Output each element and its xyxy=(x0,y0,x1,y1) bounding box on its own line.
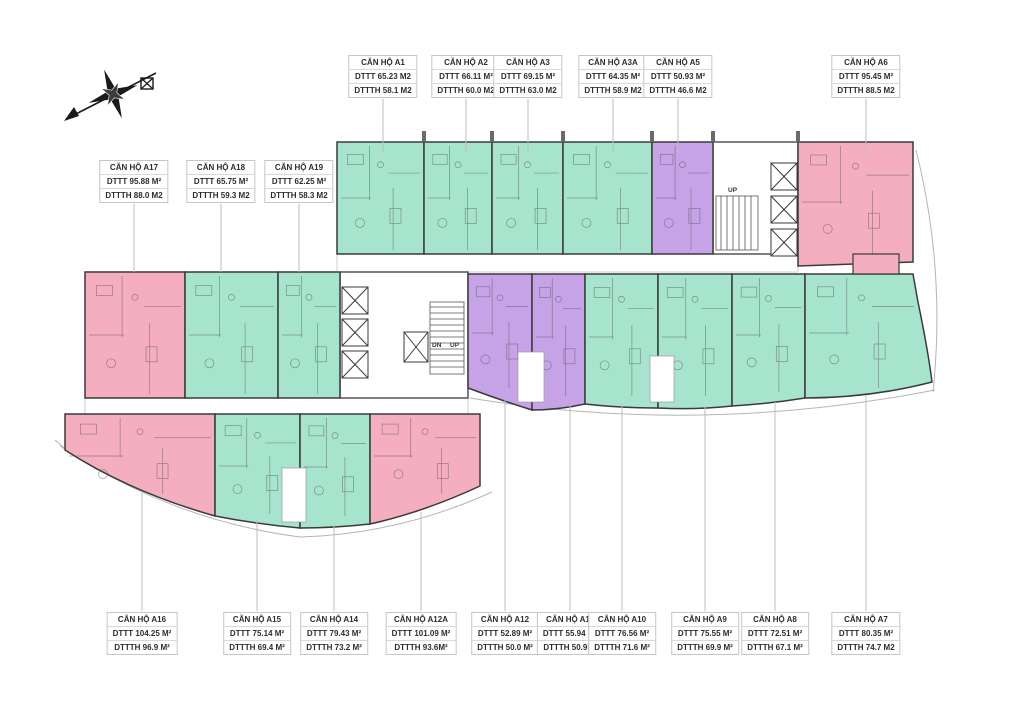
unit-label-dttt: DTTT 64.35 M² xyxy=(579,69,646,83)
wall-ticks xyxy=(422,131,800,142)
unit-label-A7[interactable]: CĂN HỘ A7DTTT 80.35 M²DTTTH 74.7 M2 xyxy=(831,612,900,655)
unit-label-dttt: DTTT 62.25 M² xyxy=(265,174,332,188)
unit-label-title: CĂN HỘ A8 xyxy=(742,613,808,626)
unit-label-title: CĂN HỘ A6 xyxy=(832,56,899,69)
unit-label-A9[interactable]: CĂN HỘ A9DTTT 75.55 M²DTTTH 69.9 M² xyxy=(671,612,739,655)
unit-label-title: CĂN HỘ A17 xyxy=(100,161,167,174)
unit-label-dttt: DTTT 75.14 M² xyxy=(224,626,290,640)
stair-label-dn: DN xyxy=(432,342,442,349)
unit-label-A10[interactable]: CĂN HỘ A10DTTT 76.56 M²DTTTH 71.6 M² xyxy=(588,612,656,655)
unit-label-title: CĂN HỘ A5 xyxy=(644,56,711,69)
unit-label-title: CĂN HỘ A1 xyxy=(349,56,416,69)
elevator-icon xyxy=(342,287,368,314)
elevator-icon xyxy=(404,332,428,362)
unit-label-dttth: DTTTH 69.9 M² xyxy=(672,640,738,654)
unit-label-title: CĂN HỘ A14 xyxy=(301,613,367,626)
unit-label-A6[interactable]: CĂN HỘ A6DTTT 95.45 M²DTTTH 88.5 M2 xyxy=(831,55,900,98)
unit-label-title: CĂN HỘ A12 xyxy=(472,613,538,626)
unit-label-dttth: DTTTH 63.0 M2 xyxy=(494,83,561,97)
unit-label-A8[interactable]: CĂN HỘ A8DTTT 72.51 M²DTTTH 67.1 M² xyxy=(741,612,809,655)
unit-label-dttt: DTTT 50.93 M² xyxy=(644,69,711,83)
elevator-icon xyxy=(771,229,797,256)
unit-label-A18[interactable]: CĂN HỘ A18DTTT 65.75 M²DTTTH 59.3 M2 xyxy=(186,160,255,203)
unit-label-dttth: DTTTH 88.0 M2 xyxy=(100,188,167,202)
unit-label-title: CĂN HỘ A19 xyxy=(265,161,332,174)
unit-label-A15[interactable]: CĂN HỘ A15DTTT 75.14 M²DTTTH 69.4 M² xyxy=(223,612,291,655)
unit-label-dttt: DTTT 66.11 M² xyxy=(432,69,499,83)
unit-label-dttt: DTTT 52.89 M² xyxy=(472,626,538,640)
unit-label-title: CĂN HỘ A15 xyxy=(224,613,290,626)
unit-region-A10[interactable] xyxy=(585,274,658,408)
unit-label-dttt: DTTT 65.23 M2 xyxy=(349,69,416,83)
unit-label-dttth: DTTTH 88.5 M2 xyxy=(832,83,899,97)
unit-label-A3[interactable]: CĂN HỘ A3DTTT 69.15 M²DTTTH 63.0 M2 xyxy=(493,55,562,98)
unit-label-title: CĂN HỘ A9 xyxy=(672,613,738,626)
unit-label-dttth: DTTTH 67.1 M² xyxy=(742,640,808,654)
unit-label-dttth: DTTTH 74.7 M2 xyxy=(832,640,899,654)
unit-label-title: CĂN HỘ A3A xyxy=(579,56,646,69)
floor-plan-canvas: UPDNUP CĂN HỘ A1DTTT 65.23 M2DTTTH 58.1 … xyxy=(0,0,1024,724)
unit-region-A8[interactable] xyxy=(732,274,805,406)
unit-label-A12[interactable]: CĂN HỘ A12DTTT 52.89 M²DTTTH 50.0 M² xyxy=(471,612,539,655)
unit-label-dttth: DTTTH 58.3 M2 xyxy=(265,188,332,202)
unit-label-dttth: DTTTH 46.6 M2 xyxy=(644,83,711,97)
compass-ornament-icon xyxy=(141,78,153,89)
compass-rose-icon xyxy=(64,70,156,121)
unit-label-dttth: DTTTH 96.9 M² xyxy=(108,640,177,654)
unit-region-A16[interactable] xyxy=(65,414,215,516)
unit-label-dttt: DTTT 72.51 M² xyxy=(742,626,808,640)
elevator-icon xyxy=(771,163,797,190)
stair-label-up: UP xyxy=(728,187,738,194)
unit-region-A6[interactable] xyxy=(798,142,913,266)
unit-region-A12A[interactable] xyxy=(370,414,480,524)
unit-label-title: CĂN HỘ A7 xyxy=(832,613,899,626)
unit-label-dttth: DTTTH 69.4 M² xyxy=(224,640,290,654)
elevator-icon xyxy=(342,351,368,378)
unit-label-A12A[interactable]: CĂN HỘ A12ADTTT 101.09 M²DTTTH 93.6M² xyxy=(386,612,457,655)
unit-label-dttth: DTTTH 60.0 M2 xyxy=(432,83,499,97)
unit-label-dttt: DTTT 76.56 M² xyxy=(589,626,655,640)
unit-label-dttt: DTTT 95.88 M² xyxy=(100,174,167,188)
unit-label-A3A[interactable]: CĂN HỘ A3ADTTT 64.35 M²DTTTH 58.9 M2 xyxy=(578,55,647,98)
stair-label-up2: UP xyxy=(450,342,460,349)
unit-label-title: CĂN HỘ A12A xyxy=(387,613,456,626)
corridor-top xyxy=(337,254,798,272)
unit-label-A19[interactable]: CĂN HỘ A19DTTT 62.25 M²DTTTH 58.3 M2 xyxy=(264,160,333,203)
unit-label-dttt: DTTT 65.75 M² xyxy=(187,174,254,188)
unit-label-dttth: DTTTH 93.6M² xyxy=(387,640,456,654)
unit-label-dttt: DTTT 75.55 M² xyxy=(672,626,738,640)
unit-label-dttt: DTTT 80.35 M² xyxy=(832,626,899,640)
corridor-middle xyxy=(85,398,468,414)
unit-label-A1[interactable]: CĂN HỘ A1DTTT 65.23 M2DTTTH 58.1 M2 xyxy=(348,55,417,98)
unit-label-title: CĂN HỘ A18 xyxy=(187,161,254,174)
elevator-icon xyxy=(771,196,797,223)
elevator-icon xyxy=(342,319,368,346)
unit-label-dttth: DTTTH 73.2 M² xyxy=(301,640,367,654)
unit-region-A7[interactable] xyxy=(805,274,932,398)
unit-label-dttth: DTTTH 59.3 M2 xyxy=(187,188,254,202)
unit-region-A14[interactable] xyxy=(300,414,370,528)
unit-label-dttth: DTTTH 58.1 M2 xyxy=(349,83,416,97)
unit-label-title: CĂN HỘ A10 xyxy=(589,613,655,626)
unit-label-dttth: DTTTH 58.9 M2 xyxy=(579,83,646,97)
unit-label-dttt: DTTT 69.15 M² xyxy=(494,69,561,83)
unit-A6-balcony xyxy=(853,254,899,274)
unit-label-dttt: DTTT 79.43 M² xyxy=(301,626,367,640)
unit-label-dttth: DTTTH 50.0 M² xyxy=(472,640,538,654)
unit-label-A17[interactable]: CĂN HỘ A17DTTT 95.88 M²DTTTH 88.0 M2 xyxy=(99,160,168,203)
unit-label-dttt: DTTT 104.25 M² xyxy=(108,626,177,640)
unit-label-title: CĂN HỘ A16 xyxy=(108,613,177,626)
unit-label-A2[interactable]: CĂN HỘ A2DTTT 66.11 M²DTTTH 60.0 M2 xyxy=(431,55,500,98)
unit-label-dttth: DTTTH 71.6 M² xyxy=(589,640,655,654)
unit-label-title: CĂN HỘ A2 xyxy=(432,56,499,69)
unit-label-dttt: DTTT 95.45 M² xyxy=(832,69,899,83)
unit-label-A16[interactable]: CĂN HỘ A16DTTT 104.25 M²DTTTH 96.9 M² xyxy=(107,612,178,655)
unit-label-A5[interactable]: CĂN HỘ A5DTTT 50.93 M²DTTTH 46.6 M2 xyxy=(643,55,712,98)
unit-label-A14[interactable]: CĂN HỘ A14DTTT 79.43 M²DTTTH 73.2 M² xyxy=(300,612,368,655)
unit-label-title: CĂN HỘ A3 xyxy=(494,56,561,69)
unit-label-dttt: DTTT 101.09 M² xyxy=(387,626,456,640)
